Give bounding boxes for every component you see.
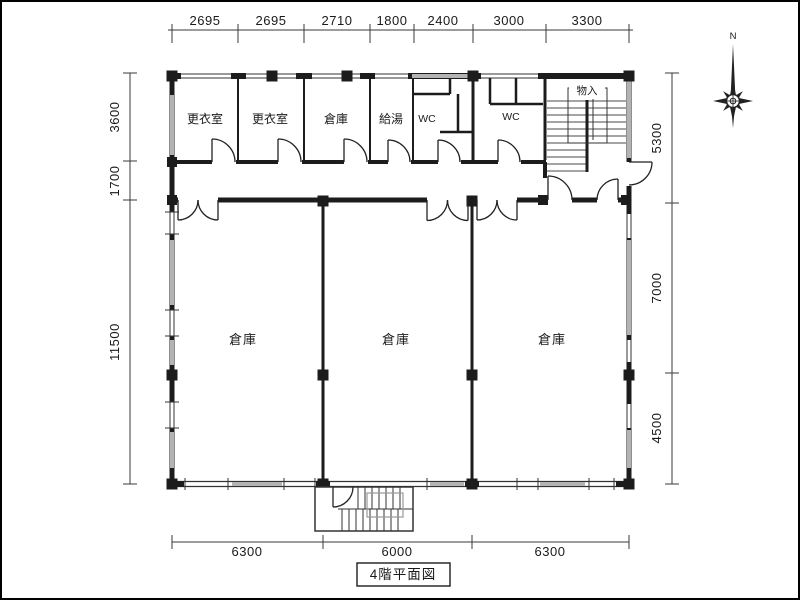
dim-top-7: 3300: [572, 13, 603, 28]
dim-top-5: 2400: [428, 13, 459, 28]
dim-right-2: 7000: [649, 273, 664, 304]
external-staircase: [315, 487, 413, 531]
room-label-warehouse-2: 倉庫: [382, 332, 410, 347]
dim-top-1: 2695: [190, 13, 221, 28]
dim-bottom-1: 6300: [232, 544, 263, 559]
room-label-closet: 物入: [577, 84, 598, 97]
room-label-warehouse-3: 倉庫: [538, 332, 566, 347]
dim-top-6: 3000: [494, 13, 525, 28]
dim-right-3: 4500: [649, 413, 664, 444]
room-label-wc-2: WC: [502, 111, 520, 123]
dim-left-2: 1700: [107, 166, 122, 197]
dim-right-1: 5300: [649, 123, 664, 154]
floor-plan-canvas: 2695 2695 2710 1800 2400 3000 3300 3600 …: [0, 0, 800, 600]
room-label-dressing-2: 更衣室: [252, 111, 288, 126]
dim-top-3: 2710: [322, 13, 353, 28]
title-text: 4階平面図: [370, 567, 437, 582]
dim-top-2: 2695: [256, 13, 287, 28]
compass-north-label: N: [730, 31, 737, 42]
drawing-title: 4階平面図: [357, 563, 450, 586]
dim-bottom-2: 6000: [382, 544, 413, 559]
room-label-hot-water: 給湯: [379, 112, 403, 126]
room-label-warehouse-1: 倉庫: [229, 332, 257, 347]
room-label-storage-small: 倉庫: [324, 111, 348, 126]
dim-top-4: 1800: [377, 13, 408, 28]
room-label-dressing-1: 更衣室: [187, 111, 223, 126]
dim-left-1: 3600: [107, 102, 122, 133]
dim-left-3: 11500: [107, 323, 122, 361]
dim-bottom-3: 6300: [535, 544, 566, 559]
room-label-wc-1: WC: [418, 113, 436, 125]
